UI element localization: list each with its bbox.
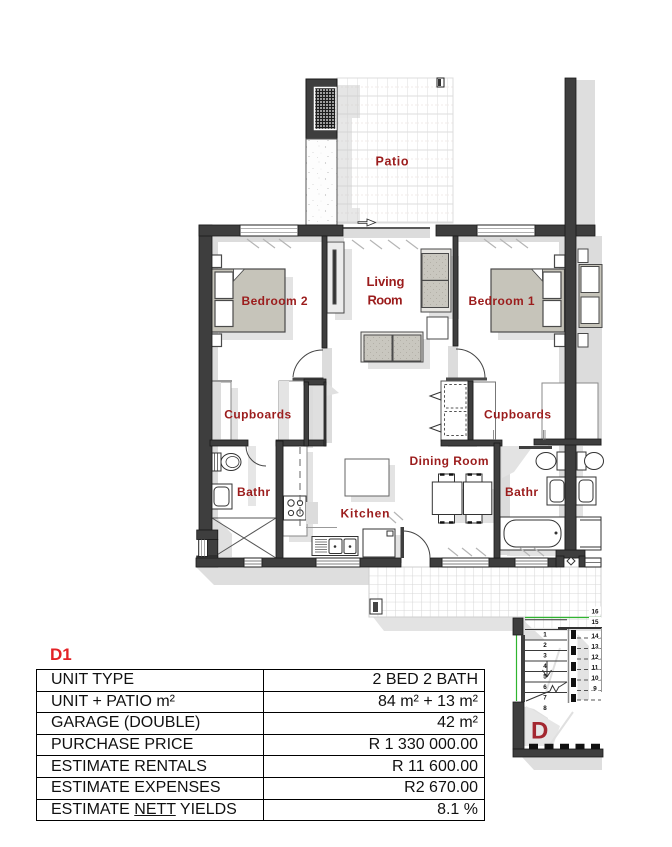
svg-text:12: 12 [591, 654, 599, 661]
svg-text:6: 6 [543, 684, 547, 691]
svg-text:15: 15 [591, 619, 599, 626]
svg-text:Bedroom 2: Bedroom 2 [242, 294, 308, 308]
svg-text:8: 8 [543, 705, 547, 712]
svg-text:16: 16 [591, 609, 599, 616]
svg-text:Kitchen: Kitchen [341, 507, 390, 521]
svg-text:13: 13 [591, 644, 599, 651]
svg-text:Bathr: Bathr [505, 485, 538, 499]
svg-text:Patio: Patio [376, 155, 409, 169]
svg-text:Bathr: Bathr [237, 485, 270, 499]
svg-text:5: 5 [543, 674, 547, 681]
svg-text:2: 2 [543, 642, 547, 649]
svg-text:Dining Room: Dining Room [410, 454, 489, 468]
svg-text:7: 7 [543, 695, 547, 702]
svg-text:11: 11 [592, 665, 599, 672]
svg-text:Living: Living [367, 274, 405, 289]
svg-text:D: D [531, 718, 548, 745]
svg-text:4: 4 [543, 663, 547, 670]
svg-text:3: 3 [543, 653, 547, 660]
svg-text:9: 9 [593, 686, 597, 693]
svg-text:10: 10 [591, 675, 599, 682]
svg-text:14: 14 [591, 633, 599, 640]
svg-text:1: 1 [543, 632, 547, 639]
svg-text:Cupboards: Cupboards [484, 408, 551, 422]
svg-text:Cupboards: Cupboards [224, 408, 291, 422]
svg-text:Room: Room [368, 293, 403, 308]
svg-text:Bedroom 1: Bedroom 1 [469, 294, 535, 308]
